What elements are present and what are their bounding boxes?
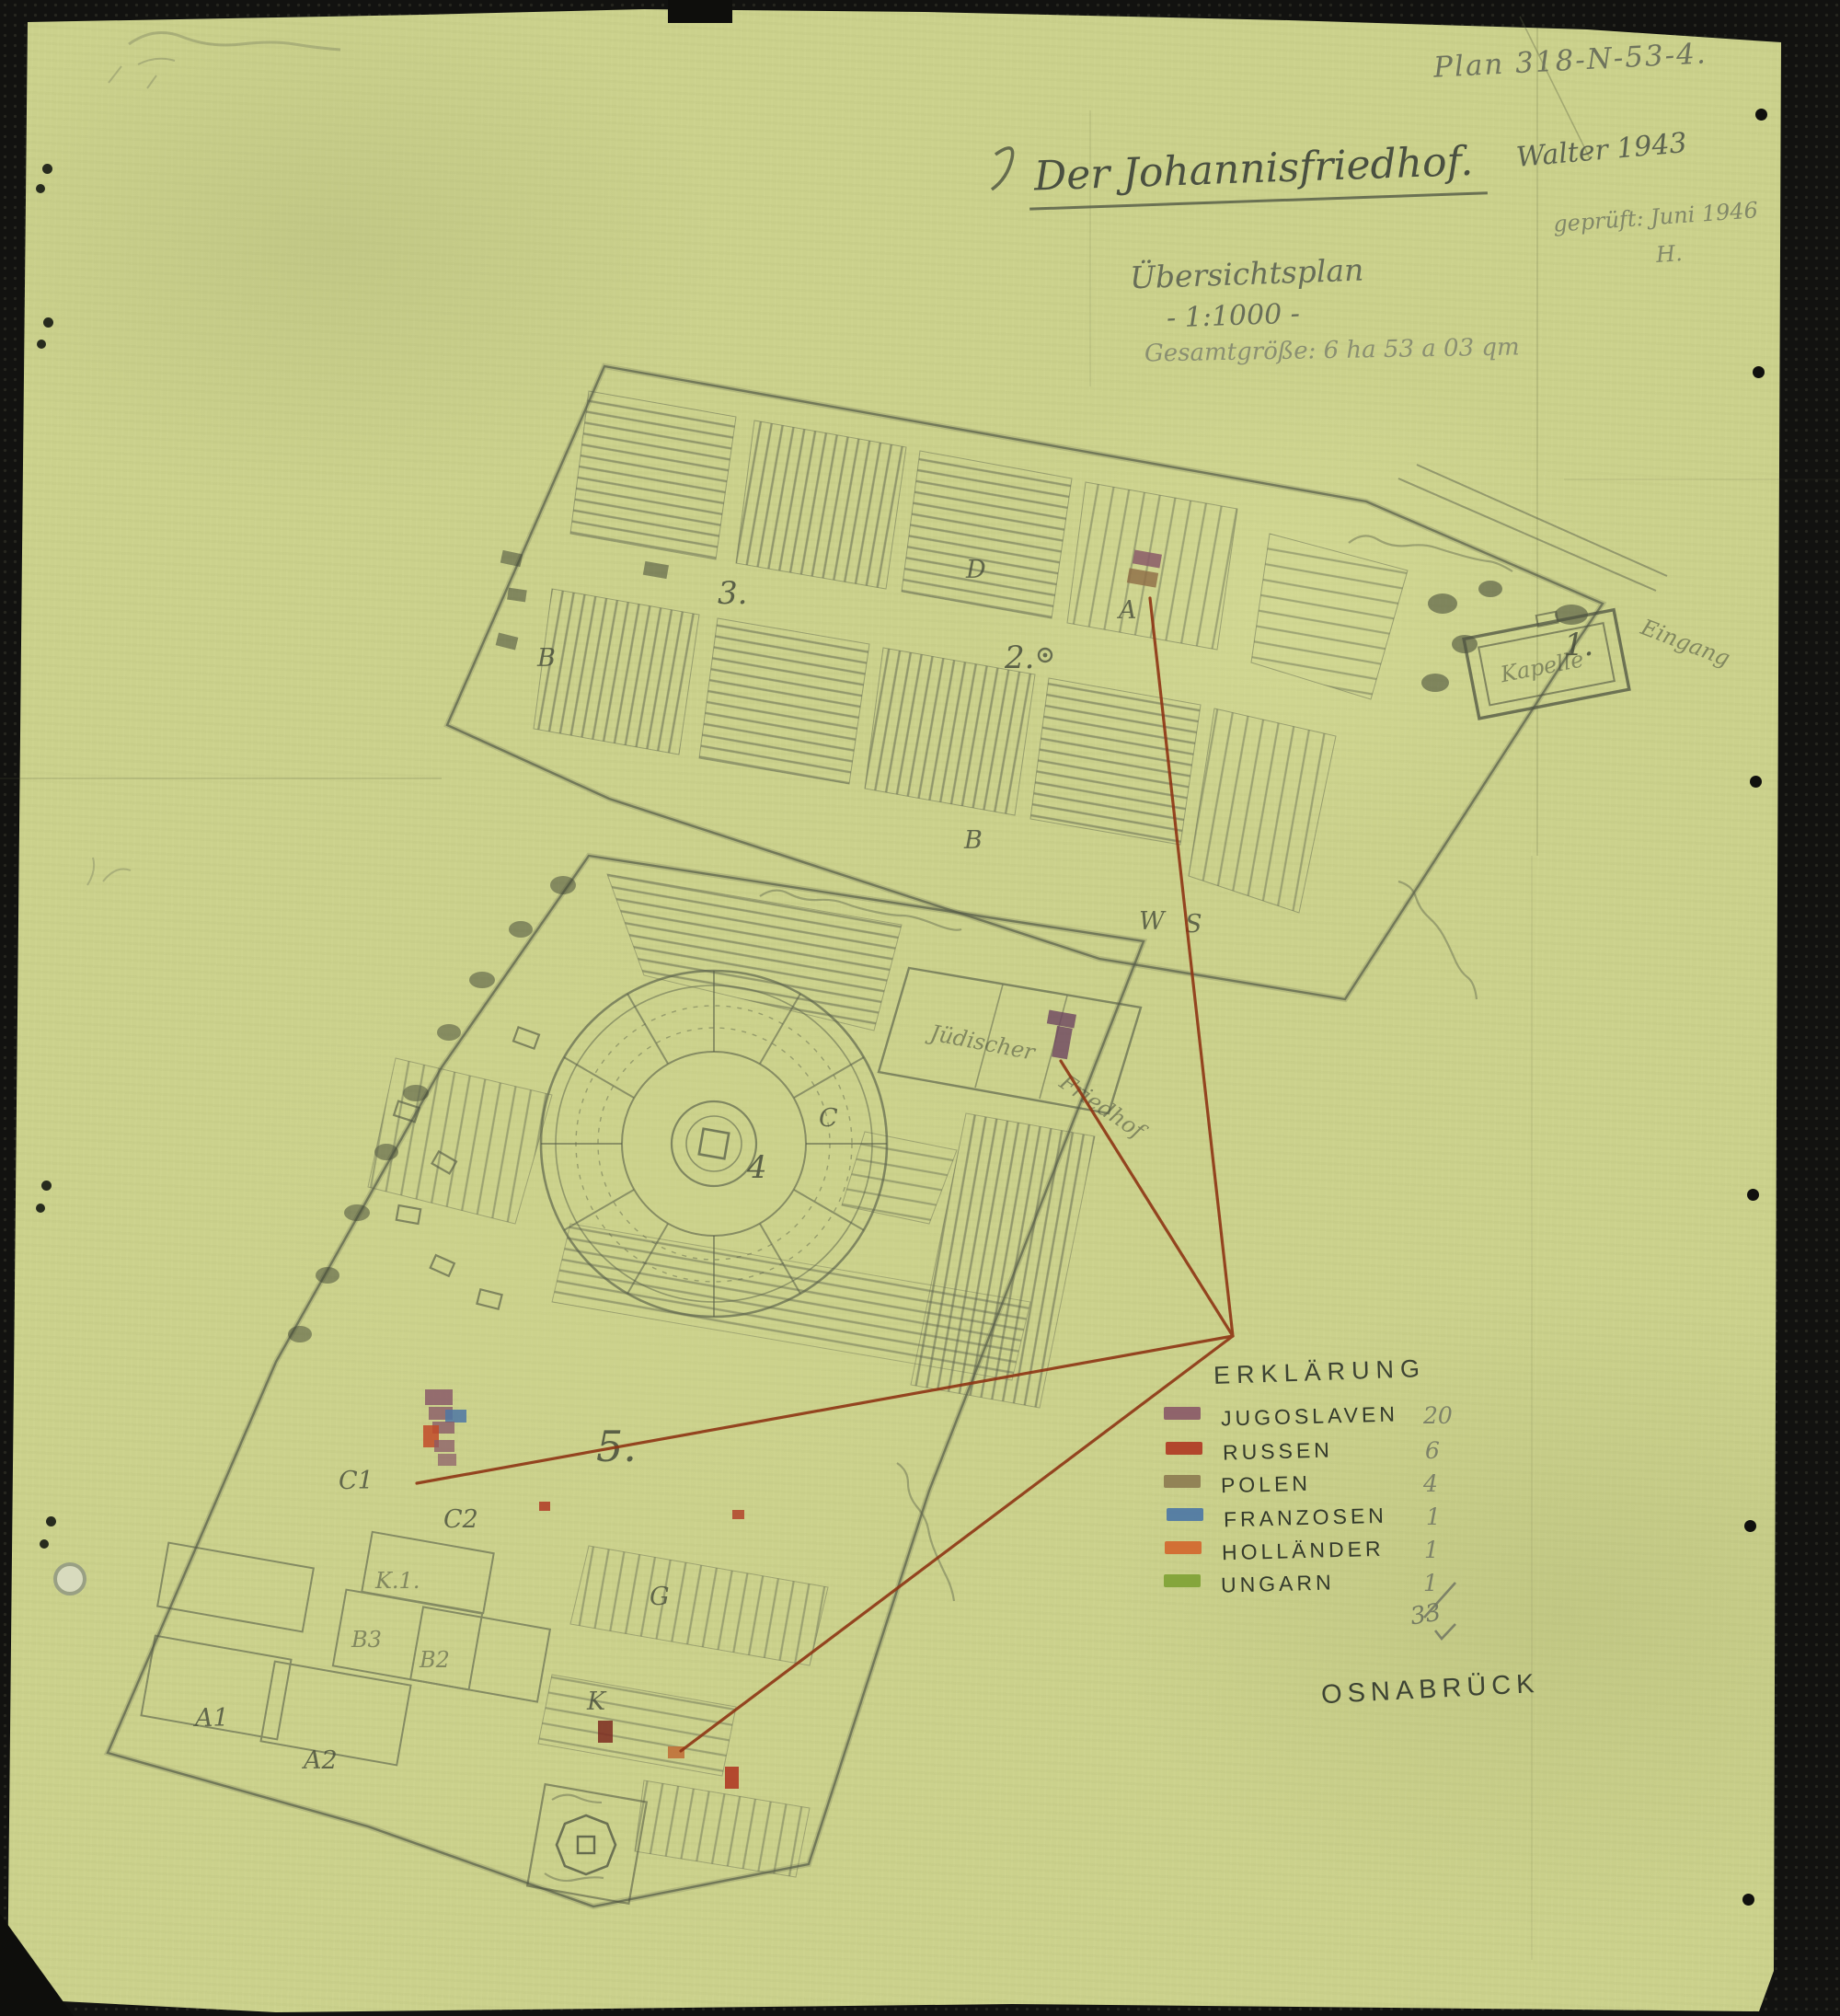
field-label-c2: C2	[443, 1505, 478, 1534]
orange-mark	[668, 1746, 684, 1758]
field-label-b-mid: B	[963, 826, 983, 855]
field-label-c: C	[819, 1104, 838, 1133]
lower-cemetery-map: Jüdischer Friedhof	[108, 856, 1152, 1907]
title-flourish	[992, 148, 1013, 190]
cemetery-map-drawing: Kapelle 3. B D A 2. B W S	[0, 0, 1840, 2016]
legend-label: JUGOSLAVEN	[1221, 1401, 1399, 1431]
field-label-k: K	[586, 1688, 607, 1716]
field-label-k1: K.1.	[374, 1568, 420, 1594]
legend-count: 20	[1423, 1402, 1453, 1429]
legend-count: 1	[1426, 1503, 1441, 1530]
checked-initial: H.	[1655, 240, 1683, 268]
field-label-2: 2.	[1004, 639, 1034, 676]
jewish-cemetery-block: Jüdischer Friedhof	[879, 968, 1152, 1146]
legend-label: RUSSEN	[1223, 1437, 1334, 1465]
red-mark	[725, 1767, 739, 1789]
scale-note: - 1:1000 -	[1166, 297, 1300, 334]
legend-swatch-franzosen	[1167, 1508, 1203, 1521]
scanned-plan-document: Kapelle 3. B D A 2. B W S	[0, 0, 1840, 2016]
legend: ERKLÄRUNG JUGOSLAVEN 20 RUSSEN 6 POLEN 4…	[1155, 1351, 1486, 1654]
dark-red-mark	[598, 1721, 613, 1743]
legend-label: HOLLÄNDER	[1222, 1537, 1385, 1566]
legend-swatch-ungarn	[1164, 1574, 1201, 1587]
legend-count: 4	[1423, 1470, 1438, 1497]
field-label-a: A	[1116, 596, 1137, 625]
field-label-w: W	[1139, 907, 1167, 936]
bottom-chapel	[527, 1784, 647, 1904]
field-label-3: 3.	[718, 575, 747, 612]
field-label-b3: B3	[351, 1627, 382, 1653]
legend-label: POLEN	[1221, 1471, 1312, 1499]
field-label-c1: C1	[339, 1467, 374, 1495]
margin-scribbles	[87, 33, 340, 886]
field-label-1: 1.	[1564, 627, 1593, 663]
field-label-g: G	[650, 1583, 670, 1611]
field-label-a2: A2	[301, 1746, 338, 1775]
field-label-d: D	[965, 556, 986, 584]
legend-swatch-jugoslaven	[1164, 1407, 1201, 1420]
field-label-a1: A1	[192, 1704, 229, 1733]
legend-title: ERKLÄRUNG	[1213, 1354, 1427, 1390]
legend-swatch-polen	[1164, 1475, 1201, 1488]
red-mark	[732, 1510, 744, 1519]
legend-label: FRANZOSEN	[1224, 1503, 1387, 1533]
red-mark	[539, 1502, 550, 1511]
legend-count: 6	[1425, 1437, 1440, 1464]
field-label-b-left: B	[536, 644, 556, 673]
legend-swatch-hollaender	[1165, 1541, 1202, 1554]
legend-total: 33	[1409, 1599, 1443, 1631]
field-label-b2: B2	[419, 1647, 450, 1673]
c1-colored-marks	[423, 1389, 466, 1466]
legend-count: 1	[1424, 1537, 1439, 1563]
jewish-label-1: Jüdischer	[924, 1019, 1039, 1066]
chapel-building: Kapelle	[1462, 601, 1629, 719]
legend-label: UNGARN	[1221, 1570, 1335, 1597]
legend-swatch-russen	[1166, 1442, 1202, 1455]
legend-count: 1	[1423, 1570, 1438, 1596]
field-label-4: 4	[746, 1149, 767, 1186]
entrance-label: Eingang	[1637, 614, 1733, 672]
